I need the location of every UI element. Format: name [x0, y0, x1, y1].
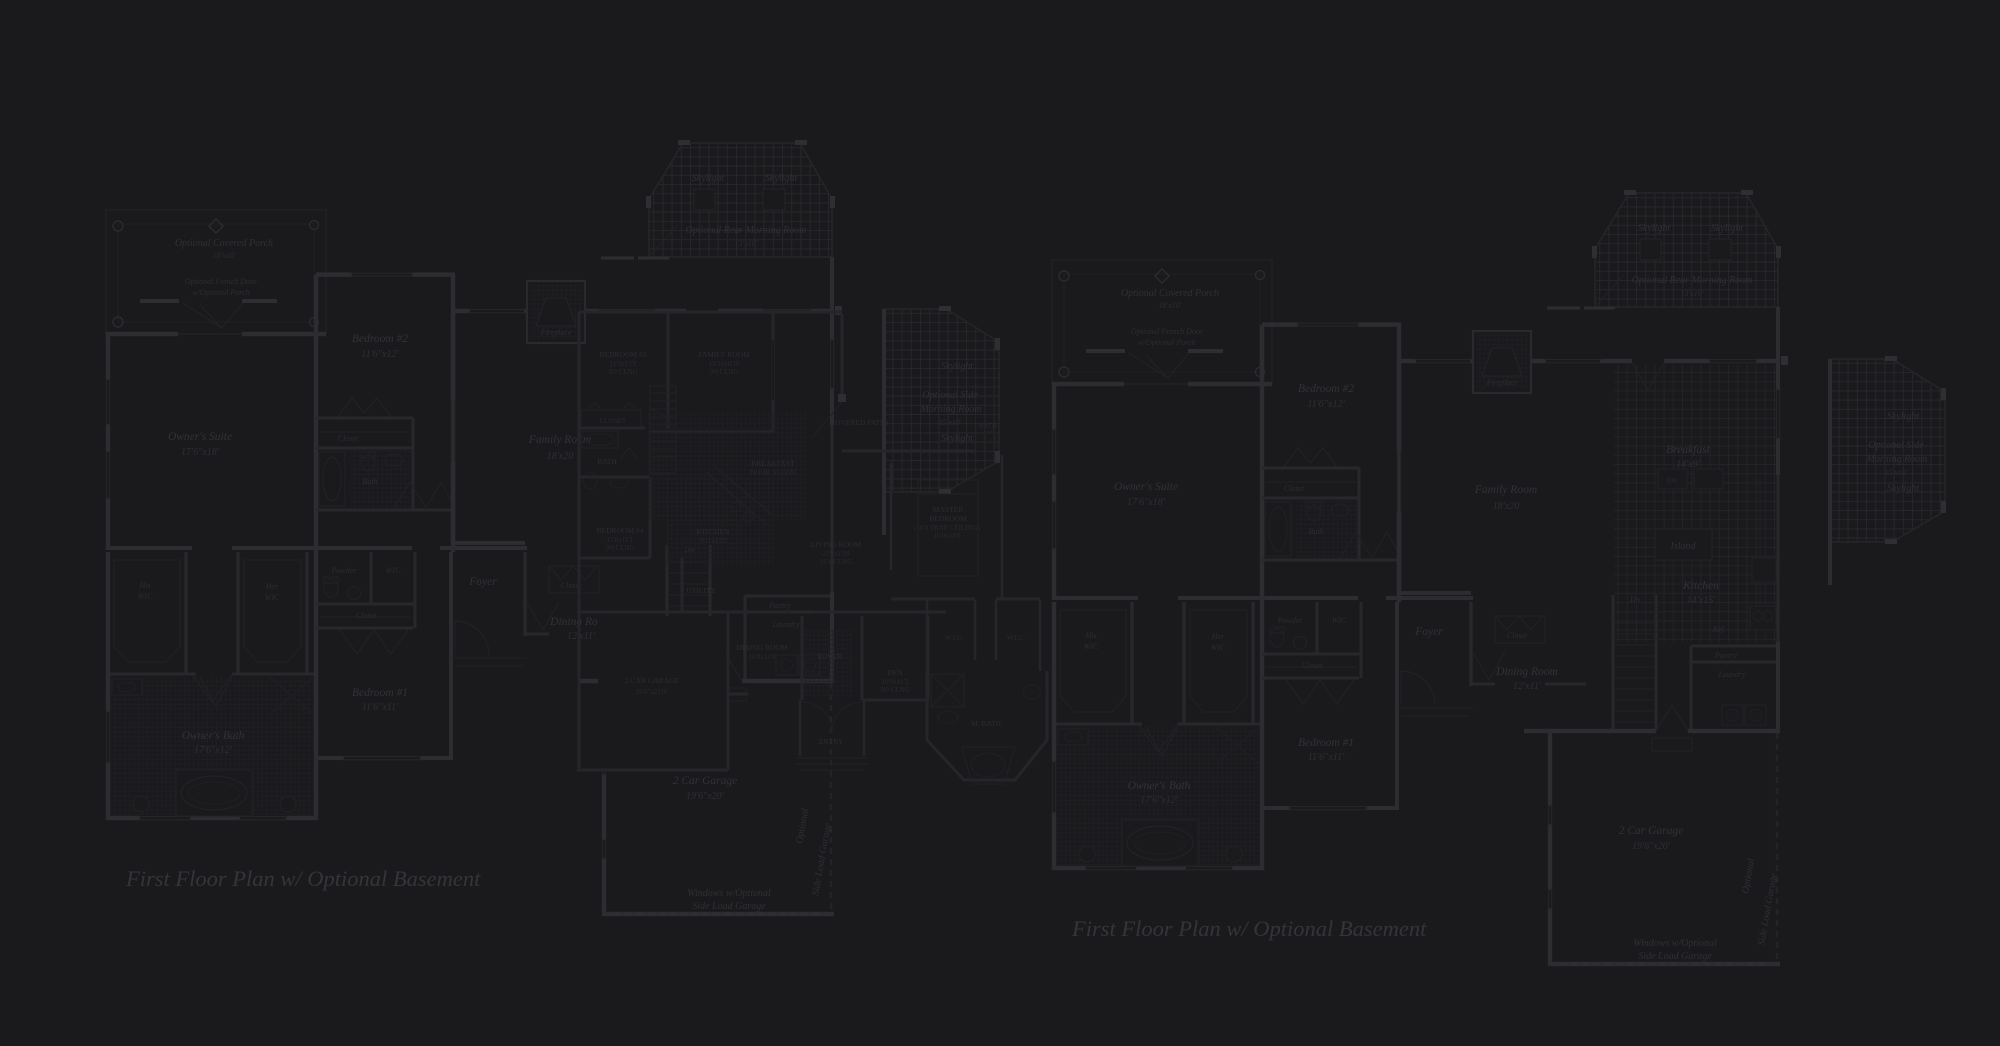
svg-text:DEN: DEN — [887, 668, 903, 677]
svg-text:DINING ROOM: DINING ROOM — [736, 643, 787, 652]
svg-text:2 CAR GARAGE: 2 CAR GARAGE — [625, 676, 680, 685]
svg-text:ENTRY: ENTRY — [819, 737, 844, 746]
svg-text:19'2x16'10: 19'2x16'10 — [709, 360, 740, 368]
svg-text:UTILITY: UTILITY — [686, 586, 716, 595]
svg-text:BATH: BATH — [979, 422, 997, 430]
svg-text:10'0x11'3: 10'0x11'3 — [882, 678, 909, 686]
svg-text:9'0 CLNG: 9'0 CLNG — [709, 368, 738, 376]
svg-text:11'0x12'0: 11'0x12'0 — [749, 653, 776, 661]
svg-text:MASTER: MASTER — [933, 505, 963, 514]
svg-text:11'0x11'1: 11'0x11'1 — [607, 536, 634, 544]
svg-text:9'0 CLNG: 9'0 CLNG — [880, 686, 909, 694]
svg-text:19'6"x21'0": 19'6"x21'0" — [636, 688, 669, 696]
svg-text:KITCHEN: KITCHEN — [697, 527, 730, 536]
svg-text:16'0x18'0: 16'0x18'0 — [933, 532, 961, 540]
svg-text:CLOSET: CLOSET — [600, 417, 627, 425]
svg-text:21'3x15'0: 21'3x15'0 — [822, 550, 850, 558]
svg-text:FAMILY ROOM: FAMILY ROOM — [698, 350, 750, 359]
svg-text:BEDROOM #3: BEDROOM #3 — [600, 350, 647, 359]
svg-text:BEDROOM #4: BEDROOM #4 — [597, 526, 644, 535]
svg-text:W.I.C.: W.I.C. — [1007, 634, 1025, 642]
svg-text:BEDROOM: BEDROOM — [929, 514, 967, 523]
svg-text:11'3x13'1: 11'3x13'1 — [610, 360, 637, 368]
svg-text:16'4 CLNG: 16'4 CLNG — [820, 558, 853, 566]
svg-text:W.I.C.: W.I.C. — [945, 634, 963, 642]
svg-text:9'0 CLNG: 9'0 CLNG — [608, 368, 637, 376]
svg-text:M. BATH: M. BATH — [971, 719, 1002, 728]
svg-text:NOOK 9'11x9'0: NOOK 9'11x9'0 — [750, 469, 796, 477]
svg-text:FOYER: FOYER — [818, 652, 843, 661]
svg-text:LIVING ROOM: LIVING ROOM — [811, 540, 862, 549]
svg-text:9'0 CLNG: 9'0 CLNG — [605, 544, 634, 552]
svg-text:COVERED PATIO: COVERED PATIO — [830, 418, 888, 427]
svg-text:BREAKFAST: BREAKFAST — [751, 459, 795, 468]
svg-text:9'11x13'2: 9'11x13'2 — [700, 537, 727, 545]
svg-text:BATH: BATH — [597, 457, 617, 466]
svg-text:(16'0 TRAY CEILING): (16'0 TRAY CEILING) — [914, 524, 981, 532]
